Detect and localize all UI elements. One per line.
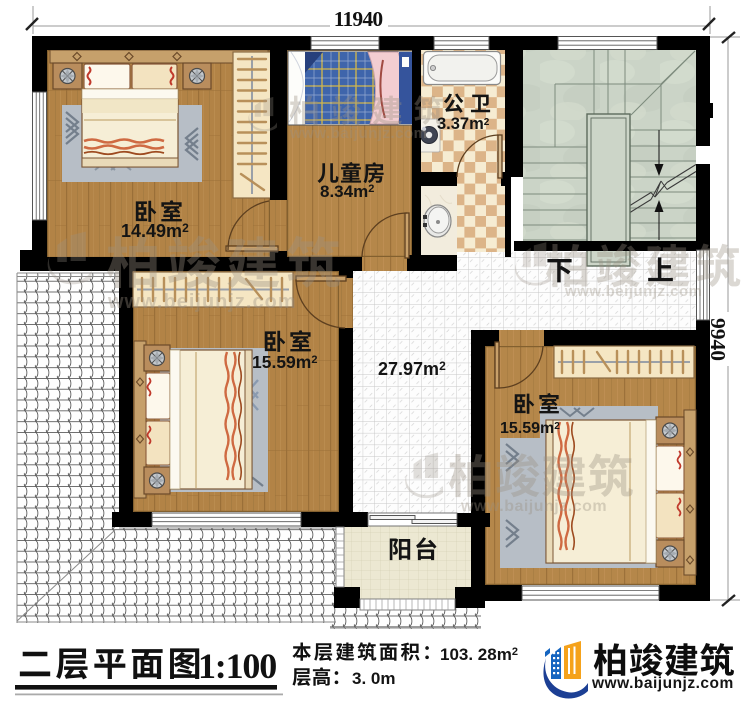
- svg-text:www.baijunjz.com: www.baijunjz.com: [460, 498, 607, 515]
- svg-text:1:100: 1:100: [198, 646, 276, 686]
- svg-text:103. 28m2: 103. 28m2: [440, 645, 518, 664]
- svg-text:15.59m2: 15.59m2: [252, 352, 317, 372]
- svg-text:8.34m2: 8.34m2: [320, 182, 374, 201]
- svg-text:www.beijunjz.com: www.beijunjz.com: [564, 283, 702, 300]
- svg-text:14.49m2: 14.49m2: [121, 221, 189, 241]
- svg-text:11940: 11940: [334, 7, 383, 31]
- svg-text:27.97m2: 27.97m2: [378, 359, 446, 379]
- svg-text:3.37m2: 3.37m2: [437, 115, 490, 133]
- svg-text:3. 0m: 3. 0m: [352, 669, 395, 688]
- svg-text:www.beijunjz.com: www.beijunjz.com: [107, 291, 297, 313]
- svg-text:www.baijunjz.com: www.baijunjz.com: [289, 125, 427, 142]
- svg-text:15.59m2: 15.59m2: [500, 420, 560, 437]
- svg-text:www.baijunjz.com: www.baijunjz.com: [591, 675, 734, 692]
